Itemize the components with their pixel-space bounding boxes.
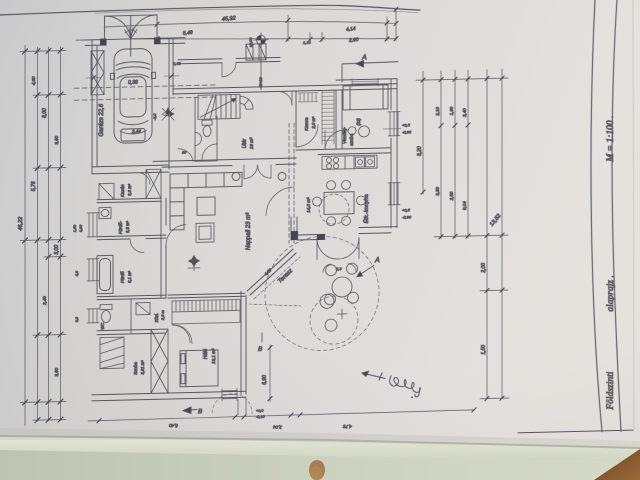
svg-text:2,00: 2,00 [481,263,487,274]
svg-text:3,00: 3,00 [54,245,60,255]
svg-text:2,90: 2,90 [348,37,359,44]
svg-text:+0,5: +0,5 [402,122,411,127]
svg-text:0,3: 0,3 [336,266,342,271]
svg-text:Kazán: Kazán [120,184,125,197]
svg-text:alaprajz .: alaprajz . [606,275,616,312]
svg-text:4,14: 4,14 [346,26,356,33]
svg-text:16 m²: 16 m² [249,137,254,149]
svg-text:Nappali 23 m²: Nappali 23 m² [246,212,252,250]
svg-text:3,20: 3,20 [417,146,423,156]
svg-text:3,6 m²: 3,6 m² [127,183,132,196]
svg-text:3,61 m²: 3,61 m² [140,360,145,375]
svg-text:1,50: 1,50 [73,224,77,232]
svg-text:4,60: 4,60 [31,76,36,85]
svg-text:0,36: 0,36 [128,80,138,86]
svg-text:szoba: szoba [349,133,354,146]
svg-text:A: A [374,257,380,264]
svg-text:4,76: 4,76 [342,424,352,429]
svg-text:45,92: 45,92 [222,16,236,23]
svg-text:B: B [258,346,263,353]
svg-text:Vendég-: Vendég- [342,126,347,143]
svg-text:1,50: 1,50 [481,345,487,355]
svg-text:+0,0: +0,0 [256,409,264,413]
svg-text:Utér: Utér [242,138,248,148]
svg-text:Kamra: Kamra [304,117,309,131]
svg-text:Közl.: Közl. [154,313,159,322]
svg-text:2,6 m: 2,6 m [160,309,165,321]
svg-text:6,90: 6,90 [262,375,268,385]
svg-text:40×20: 40×20 [259,76,263,88]
svg-text:B: B [198,408,203,415]
svg-text:2,40: 2,40 [462,108,467,118]
svg-text:6,40: 6,40 [168,423,178,428]
svg-text:Étk.-konyha: Étk.-konyha [363,194,370,223]
svg-text:3,50: 3,50 [54,135,59,144]
svg-text:8,00: 8,00 [42,108,48,118]
svg-text:14,0 m²: 14,0 m² [306,197,311,213]
svg-text:6,1 m²: 6,1 m² [127,270,132,283]
svg-text:2,10: 2,10 [435,106,440,116]
svg-text:1,90: 1,90 [449,106,454,115]
svg-text:Szoba: Szoba [133,362,138,375]
svg-text:2,0 m²: 2,0 m² [311,116,316,130]
svg-text:6,3 m²: 6,3 m² [125,220,130,233]
svg-text:16,1 m²: 16,1 m² [211,348,216,364]
svg-text:2,04: 2,04 [272,424,283,429]
svg-text:5,76: 5,76 [31,181,37,191]
svg-text:-0,90: -0,90 [402,214,412,219]
svg-text:WC: WC [100,322,105,330]
svg-text:0,90: 0,90 [79,224,83,232]
svg-text:(22): (22) [356,117,361,125]
svg-text:2,50: 2,50 [449,191,454,201]
svg-text:3,60: 3,60 [54,367,59,376]
svg-text:Fürdő-: Fürdő- [118,220,123,234]
svg-text:5,48: 5,48 [183,30,193,37]
svg-text:46,22: 46,22 [18,217,24,231]
svg-text:Fürdő: Fürdő [120,271,125,283]
svg-text:±0,00: ±0,00 [249,37,253,47]
svg-text:+0,5: +0,5 [402,207,411,212]
svg-text:M = 1:100 .: M = 1:100 . [606,116,616,163]
svg-text:2,44: 2,44 [131,129,141,134]
svg-text:-3,0: -3,0 [152,113,157,121]
svg-text:9,04: 9,04 [462,201,467,210]
svg-text:1,14: 1,14 [303,40,312,45]
svg-text:Garázs 22,6: Garázs 22,6 [99,103,105,136]
svg-text:3,50: 3,50 [435,186,440,195]
svg-text:A: A [361,54,367,61]
svg-text:Háló: Háló [203,349,209,360]
svg-text:-0,90: -0,90 [402,129,412,134]
svg-text:2,40: 2,40 [42,296,47,306]
svg-text:-0,10: -0,10 [256,415,266,419]
svg-text:Földszinti: Földszinti [606,371,616,411]
